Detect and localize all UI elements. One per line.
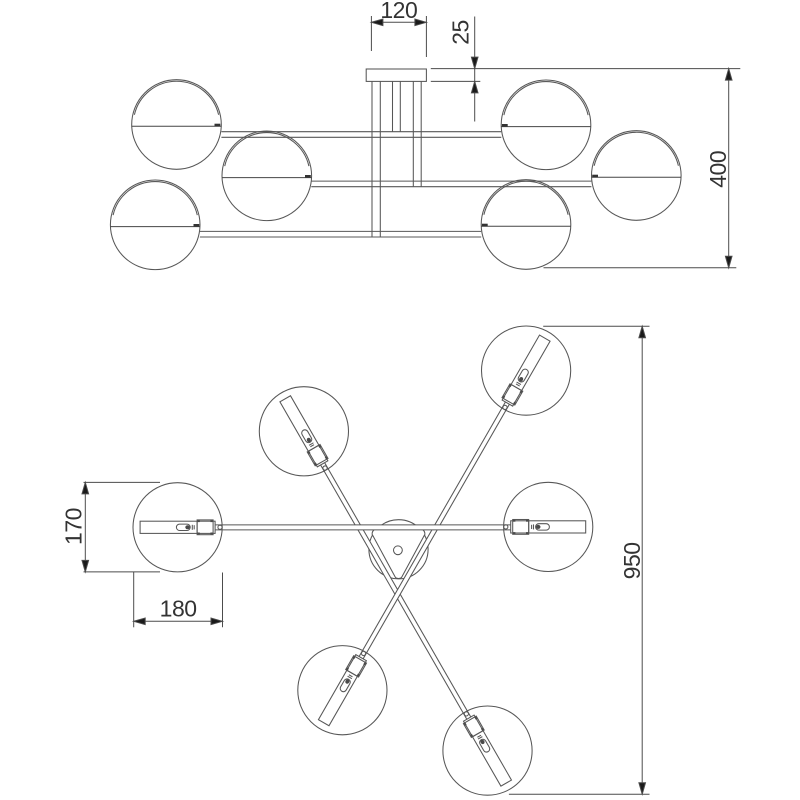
svg-text:170: 170: [60, 508, 86, 545]
svg-text:400: 400: [705, 151, 731, 188]
svg-text:25: 25: [447, 20, 473, 45]
svg-text:120: 120: [380, 0, 417, 23]
svg-text:180: 180: [160, 596, 197, 622]
svg-text:950: 950: [619, 542, 645, 579]
